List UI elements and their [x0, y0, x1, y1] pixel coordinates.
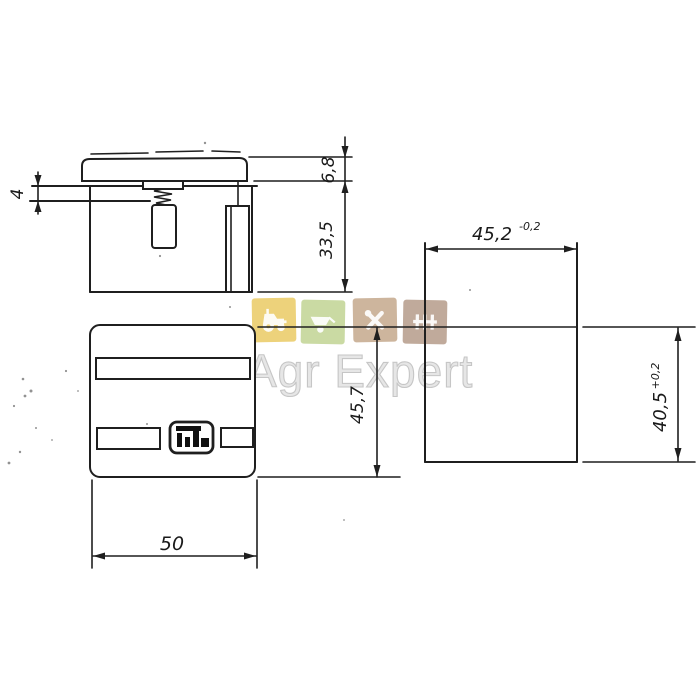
plunger	[152, 205, 176, 248]
front-view: 45,7 50	[90, 325, 577, 568]
dim-front-width: 50	[160, 533, 184, 555]
side-view: 6,8 33,5 4	[8, 137, 352, 292]
dim-cutout-width: 45,2	[472, 224, 512, 245]
contact-bar	[226, 206, 249, 292]
front-face	[90, 325, 255, 477]
top-slot	[96, 358, 250, 379]
technical-drawing: 6,8 33,5 4	[0, 0, 700, 700]
dim-cutout-width-tol: -0,2	[519, 220, 540, 233]
dim-cutout-height: 40,5	[650, 392, 671, 432]
rocker-cap	[82, 158, 247, 181]
dim-cap-height: 6,8	[319, 156, 339, 183]
left-window	[97, 428, 160, 449]
dim-front-height: 45,7	[348, 386, 368, 424]
spring-seat	[143, 181, 183, 189]
dim-body-height: 33,5	[317, 221, 337, 259]
spring	[154, 189, 172, 205]
dim-cutout-height-tol: +0,2	[649, 363, 662, 390]
panel-cutout-view: 45,2 -0,2 40,5 +0,2	[425, 220, 695, 462]
right-window	[221, 428, 253, 447]
scanned-technical-drawing: Agr Expert	[0, 0, 700, 700]
dim-terminal: 4	[8, 189, 28, 200]
